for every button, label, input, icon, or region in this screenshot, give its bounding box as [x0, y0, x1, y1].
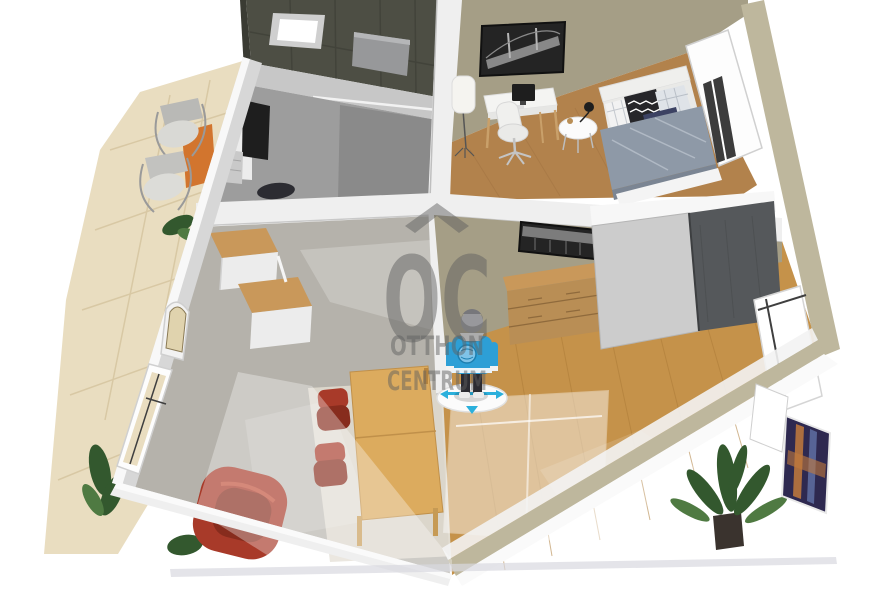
kitchen-wall-shade	[338, 105, 437, 200]
floorplan-canvas: OC OTTHON CENTRUM	[0, 0, 885, 591]
lamp-shade	[452, 76, 475, 113]
arched-door	[161, 302, 189, 360]
tile-joint	[415, 0, 416, 93]
watermark-line1: OTTHON	[390, 331, 484, 362]
abstract-wall-art	[782, 416, 830, 513]
floorplan-render: OC OTTHON CENTRUM	[0, 0, 885, 591]
plant-pot	[713, 512, 744, 550]
bridge-wall-art	[480, 22, 565, 76]
avatar-hand	[490, 366, 498, 371]
front-wall-window	[750, 384, 788, 452]
skylight-glass	[277, 19, 318, 43]
tile-joint	[335, 0, 336, 79]
table-lamp-shade	[584, 102, 594, 112]
chair-pole	[514, 138, 515, 152]
watermark-line2: CENTRUM	[387, 366, 487, 397]
shelf-front	[250, 306, 312, 349]
avatar-arm	[490, 342, 498, 370]
table-leg	[433, 508, 438, 536]
table-decor	[567, 118, 573, 124]
monitor	[512, 84, 535, 101]
monitor-stand	[520, 101, 526, 105]
wardrobe-door-light	[592, 213, 699, 349]
watermark: OC OTTHON CENTRUM	[383, 203, 491, 397]
